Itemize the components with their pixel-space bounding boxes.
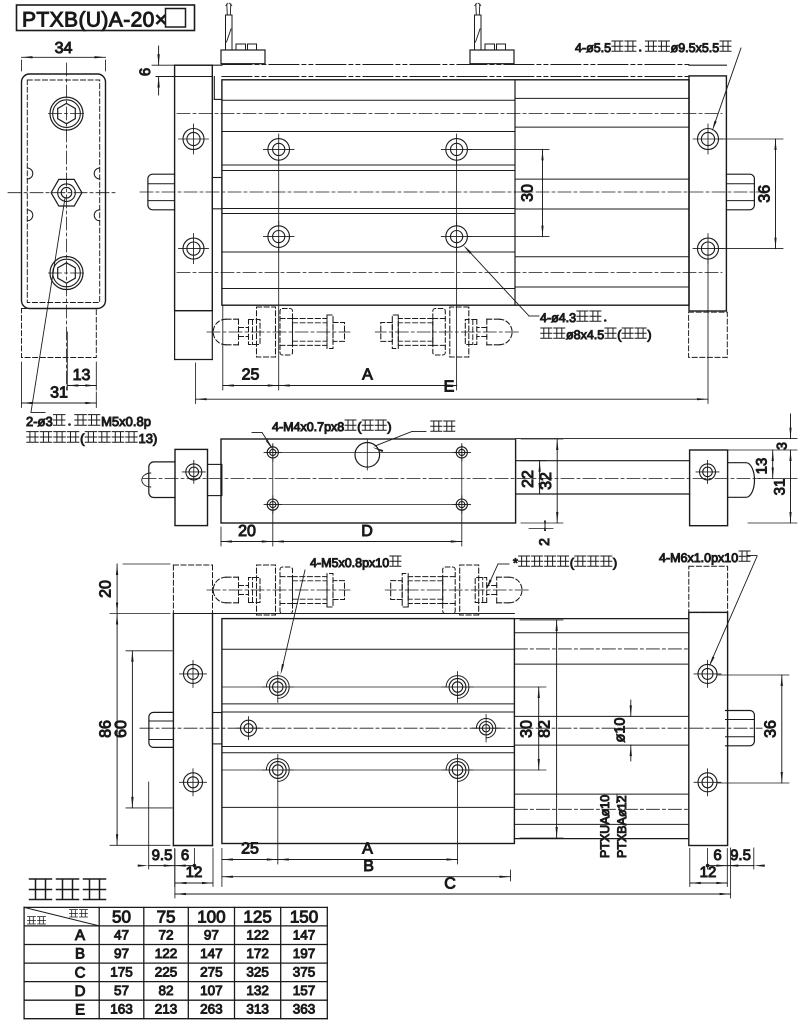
svg-text:E: E xyxy=(444,379,455,396)
svg-text:(: ( xyxy=(570,556,575,570)
svg-text:4-: 4- xyxy=(575,41,586,55)
svg-text:122: 122 xyxy=(155,946,178,961)
svg-text:97: 97 xyxy=(204,927,219,942)
svg-text:A: A xyxy=(75,927,85,944)
svg-text:D: D xyxy=(361,523,373,540)
svg-text:263: 263 xyxy=(200,1002,223,1017)
svg-text:A: A xyxy=(362,841,373,858)
svg-text:375: 375 xyxy=(293,965,316,980)
svg-text:4-: 4- xyxy=(540,311,551,325)
svg-text:32: 32 xyxy=(538,472,555,490)
svg-text:4-M4x0.7px8: 4-M4x0.7px8 xyxy=(272,420,344,434)
svg-text:6: 6 xyxy=(181,847,189,864)
svg-text:325: 325 xyxy=(246,965,269,980)
svg-text:132: 132 xyxy=(246,983,269,998)
svg-text:20: 20 xyxy=(238,523,256,540)
svg-text:30: 30 xyxy=(519,720,536,738)
svg-text:275: 275 xyxy=(200,965,223,980)
svg-text:86: 86 xyxy=(98,720,115,738)
svg-text:225: 225 xyxy=(155,965,178,980)
svg-text:47: 47 xyxy=(114,927,129,942)
svg-text:6: 6 xyxy=(713,847,721,864)
svg-text:30: 30 xyxy=(520,184,537,202)
svg-text:PTXBAø12: PTXBAø12 xyxy=(615,795,629,858)
svg-text:): ) xyxy=(387,420,391,434)
svg-text:): ) xyxy=(647,328,651,342)
svg-text:13: 13 xyxy=(754,458,771,475)
svg-text:82: 82 xyxy=(159,983,174,998)
svg-text:ø9.5x5.5: ø9.5x5.5 xyxy=(671,41,720,55)
svg-text:(: ( xyxy=(617,328,622,342)
svg-text:57: 57 xyxy=(114,983,129,998)
svg-text:13): 13) xyxy=(139,431,158,446)
svg-text:2-ø3: 2-ø3 xyxy=(26,414,53,429)
svg-text:60: 60 xyxy=(113,720,130,738)
svg-text:9.5: 9.5 xyxy=(730,847,751,864)
svg-text:100: 100 xyxy=(197,908,225,927)
svg-text:D: D xyxy=(75,983,86,1000)
svg-text:363: 363 xyxy=(293,1002,316,1017)
svg-text:): ) xyxy=(613,556,617,570)
svg-text:172: 172 xyxy=(246,946,269,961)
svg-text:PTXB(U)A-20×: PTXB(U)A-20× xyxy=(22,9,167,32)
svg-text:4-M5x0.8px10: 4-M5x0.8px10 xyxy=(310,556,389,570)
svg-text:213: 213 xyxy=(155,1002,178,1017)
svg-text:3: 3 xyxy=(774,442,790,450)
svg-text:2: 2 xyxy=(536,538,552,546)
svg-text:25: 25 xyxy=(241,841,259,858)
svg-text:C: C xyxy=(444,876,456,893)
svg-text:72: 72 xyxy=(159,927,174,942)
svg-text:34: 34 xyxy=(55,40,73,57)
svg-text:PTXUAø10: PTXUAø10 xyxy=(598,795,612,858)
svg-text:31: 31 xyxy=(772,479,789,496)
svg-text:31: 31 xyxy=(50,385,68,402)
svg-text:9.5: 9.5 xyxy=(152,847,173,864)
svg-text:147: 147 xyxy=(293,927,316,942)
svg-text:6: 6 xyxy=(137,68,154,76)
svg-text:150: 150 xyxy=(290,908,318,927)
svg-text:157: 157 xyxy=(293,983,316,998)
svg-text:C: C xyxy=(75,964,86,981)
svg-text:175: 175 xyxy=(110,965,133,980)
svg-text:197: 197 xyxy=(293,946,316,961)
svg-text:122: 122 xyxy=(246,927,269,942)
svg-text:163: 163 xyxy=(110,1002,133,1017)
svg-text:36: 36 xyxy=(763,720,780,738)
svg-text:50: 50 xyxy=(112,908,131,927)
svg-text:(: ( xyxy=(80,431,85,446)
svg-text:*: * xyxy=(513,556,518,570)
svg-text:ø5.5: ø5.5 xyxy=(586,41,611,55)
svg-text:36: 36 xyxy=(757,185,774,203)
svg-text:107: 107 xyxy=(200,983,223,998)
svg-text:20: 20 xyxy=(98,580,115,598)
svg-text:313: 313 xyxy=(246,1002,269,1017)
svg-text:82: 82 xyxy=(537,720,554,738)
svg-text:75: 75 xyxy=(157,908,176,927)
svg-text:(: ( xyxy=(357,420,362,434)
svg-text:12: 12 xyxy=(700,864,717,881)
svg-text:147: 147 xyxy=(200,946,223,961)
svg-text:13: 13 xyxy=(73,367,91,384)
svg-text:ø10: ø10 xyxy=(613,718,629,743)
svg-text:B: B xyxy=(363,858,374,875)
svg-text:97: 97 xyxy=(114,946,129,961)
svg-text:ø8x4.5: ø8x4.5 xyxy=(566,328,604,342)
svg-text:25: 25 xyxy=(242,367,260,384)
svg-text:ø4.3: ø4.3 xyxy=(551,311,576,325)
svg-text:125: 125 xyxy=(243,908,271,927)
svg-text:E: E xyxy=(75,1001,85,1018)
svg-text:B: B xyxy=(75,946,85,963)
svg-text:4-M6x1.0px10: 4-M6x1.0px10 xyxy=(659,551,738,565)
svg-text:M5x0.8p: M5x0.8p xyxy=(101,414,151,429)
svg-text:22: 22 xyxy=(520,470,537,488)
svg-text:A: A xyxy=(362,367,373,384)
svg-text:12: 12 xyxy=(186,864,203,881)
